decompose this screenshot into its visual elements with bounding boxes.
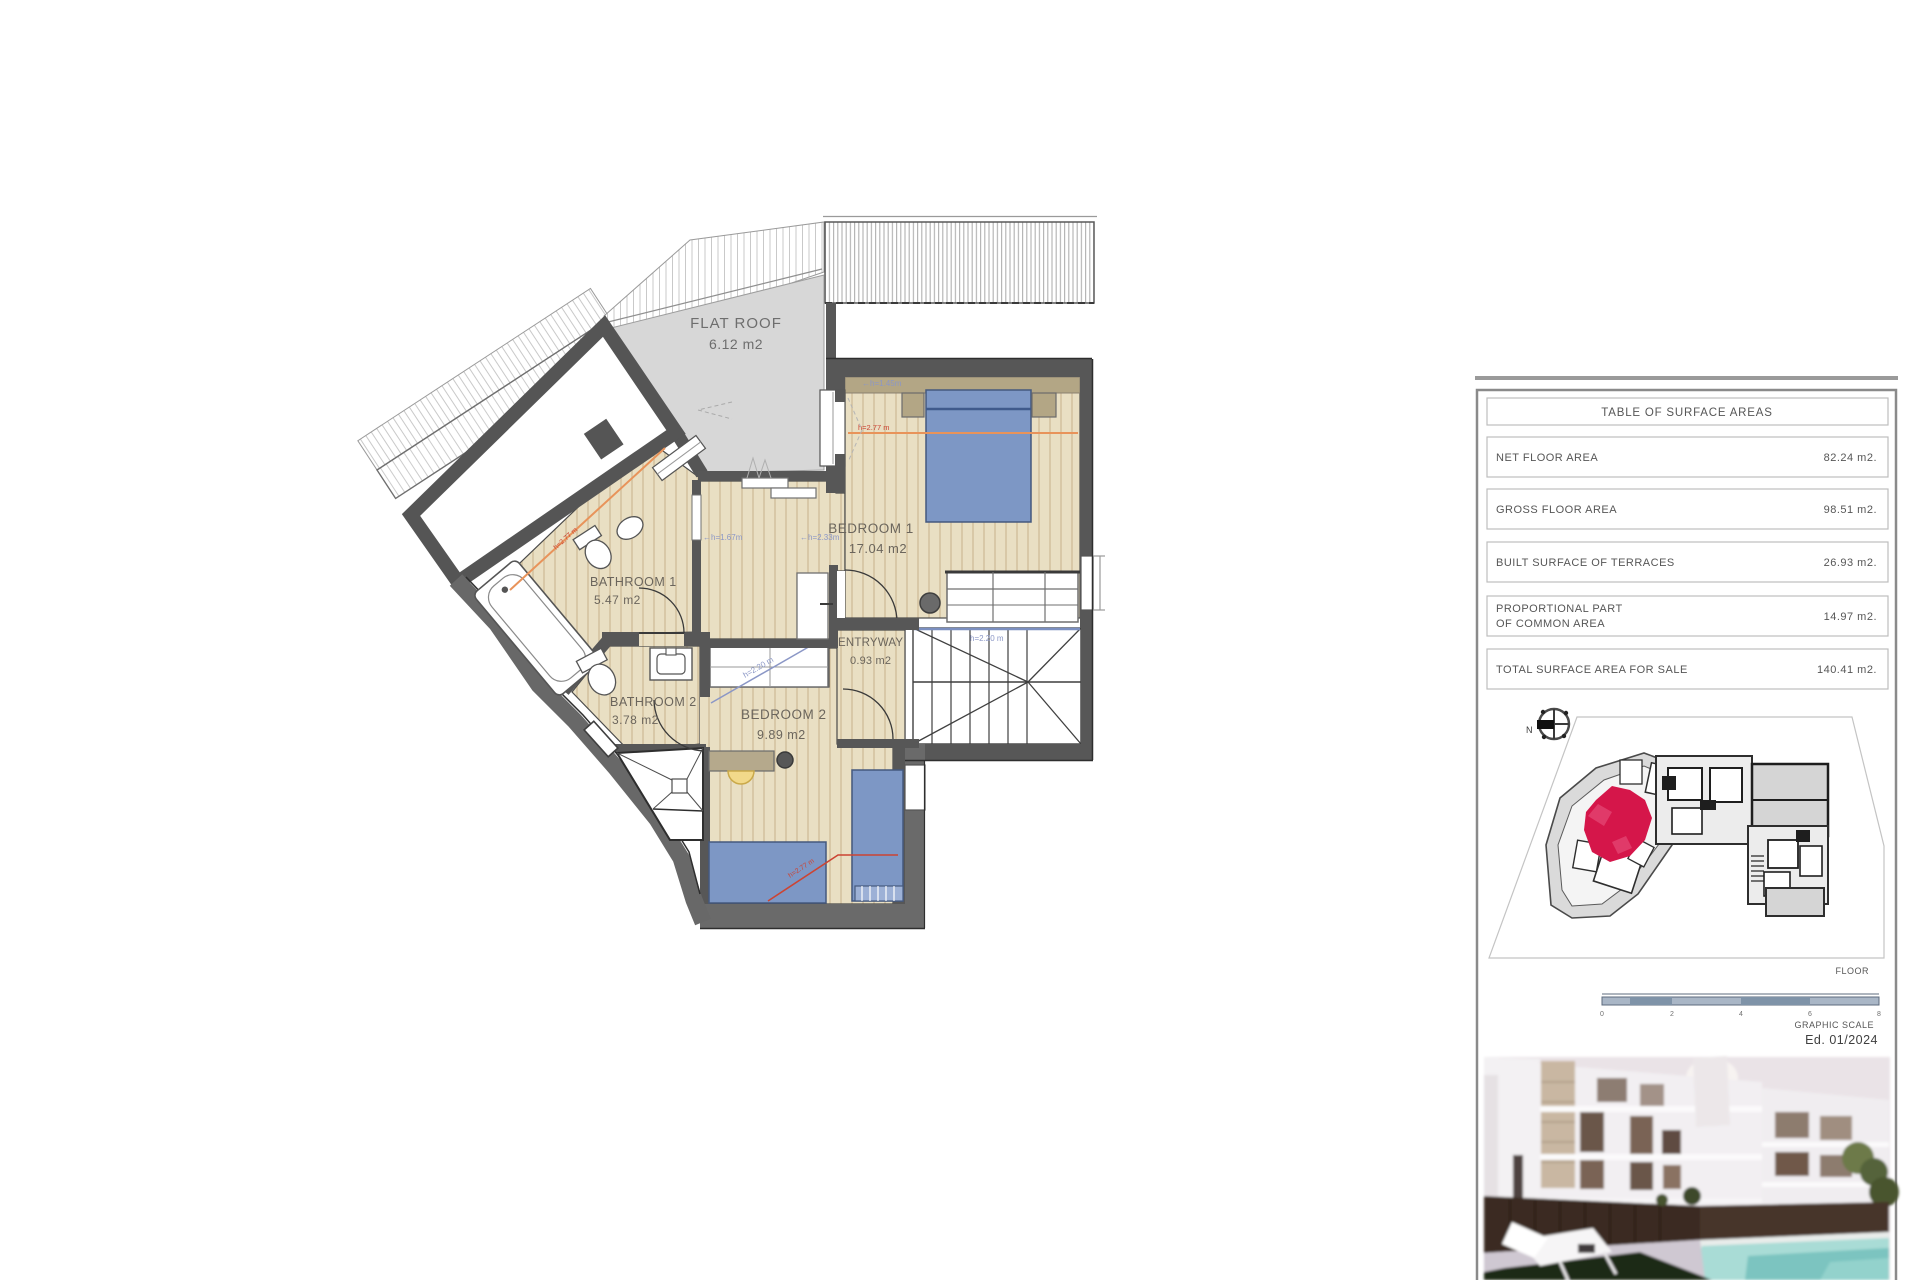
svg-text:3.78 m2: 3.78 m2 <box>612 713 659 727</box>
svg-text:FLOOR: FLOOR <box>1835 966 1869 976</box>
svg-text:GROSS FLOOR AREA: GROSS FLOOR AREA <box>1496 504 1617 516</box>
svg-text:TOTAL SURFACE AREA FOR SALE: TOTAL SURFACE AREA FOR SALE <box>1496 664 1688 676</box>
svg-text:PROPORTIONAL PART: PROPORTIONAL PART <box>1496 603 1623 615</box>
svg-text:Ed. 01/2024: Ed. 01/2024 <box>1805 1033 1878 1047</box>
svg-text:26.93 m2.: 26.93 m2. <box>1824 557 1877 569</box>
svg-text:←h=1.67m: ←h=1.67m <box>703 533 743 542</box>
svg-text:FLAT ROOF: FLAT ROOF <box>690 315 782 332</box>
svg-text:9.89 m2: 9.89 m2 <box>757 728 806 742</box>
svg-text:0.93 m2: 0.93 m2 <box>850 655 891 667</box>
svg-text:0: 0 <box>1600 1011 1604 1018</box>
svg-text:N: N <box>1526 725 1533 735</box>
svg-text:14.97 m2.: 14.97 m2. <box>1824 611 1877 623</box>
svg-text:ENTRYWAY: ENTRYWAY <box>838 637 903 649</box>
svg-text:98.51 m2.: 98.51 m2. <box>1824 504 1877 516</box>
svg-text:GRAPHIC SCALE: GRAPHIC SCALE <box>1794 1020 1874 1030</box>
svg-text:h=2.20 m: h=2.20 m <box>970 634 1004 643</box>
svg-text:BEDROOM 2: BEDROOM 2 <box>741 707 827 722</box>
svg-text:6.12 m2: 6.12 m2 <box>709 336 763 352</box>
svg-text:4: 4 <box>1739 1011 1743 1018</box>
svg-text:OF COMMON AREA: OF COMMON AREA <box>1496 618 1605 630</box>
svg-text:BATHROOM 2: BATHROOM 2 <box>610 695 697 709</box>
svg-text:140.41 m2.: 140.41 m2. <box>1817 664 1877 676</box>
svg-text:h=2.77 m: h=2.77 m <box>858 423 889 432</box>
svg-text:NET FLOOR AREA: NET FLOOR AREA <box>1496 452 1598 464</box>
svg-text:6: 6 <box>1808 1011 1812 1018</box>
svg-text:82.24 m2.: 82.24 m2. <box>1824 452 1877 464</box>
svg-text:TABLE OF SURFACE AREAS: TABLE OF SURFACE AREAS <box>1601 407 1772 419</box>
svg-text:BATHROOM 1: BATHROOM 1 <box>590 575 677 589</box>
svg-text:←h=1.45m: ←h=1.45m <box>862 379 902 388</box>
svg-text:17.04 m2: 17.04 m2 <box>849 541 907 556</box>
svg-text:5.47 m2: 5.47 m2 <box>594 593 641 607</box>
svg-text:BUILT SURFACE OF TERRACES: BUILT SURFACE OF TERRACES <box>1496 557 1675 569</box>
svg-text:BEDROOM 1: BEDROOM 1 <box>828 521 914 536</box>
svg-text:8: 8 <box>1877 1011 1881 1018</box>
svg-text:2: 2 <box>1670 1011 1674 1018</box>
